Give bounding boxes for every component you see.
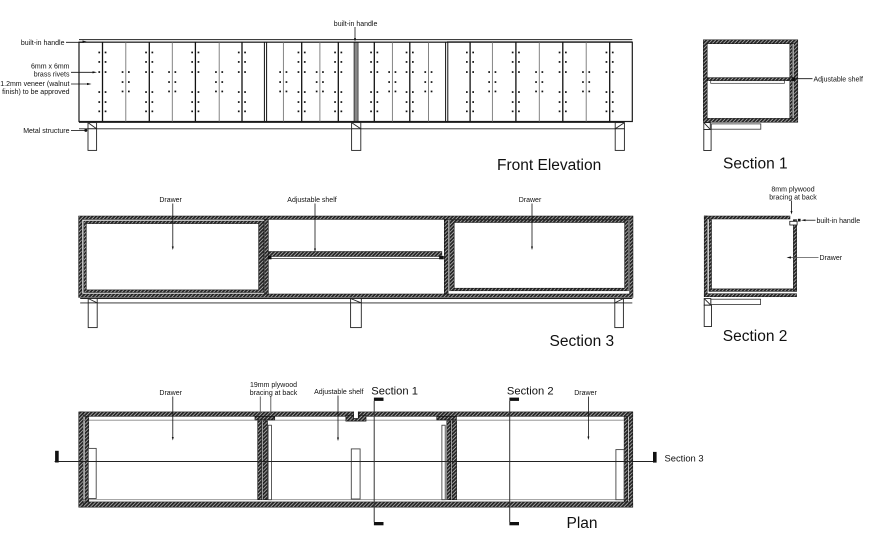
svg-text:Section 3: Section 3 (665, 453, 704, 464)
svg-text:bracing at back: bracing at back (250, 390, 298, 397)
svg-text:Metal structure: Metal structure (23, 128, 69, 135)
svg-text:Adjustable shelf: Adjustable shelf (814, 76, 863, 83)
svg-text:Plan: Plan (567, 515, 598, 532)
svg-text:finish) to be approved: finish) to be approved (2, 89, 69, 96)
svg-text:brass rivets: brass rivets (34, 72, 70, 79)
svg-text:6mm x 6mm: 6mm x 6mm (31, 64, 70, 71)
svg-text:Drawer: Drawer (820, 255, 843, 262)
svg-text:Drawer: Drawer (159, 390, 182, 397)
svg-text:bracing at back: bracing at back (769, 194, 817, 201)
svg-text:8mm plywood: 8mm plywood (771, 186, 814, 193)
svg-text:Section 1: Section 1 (723, 156, 788, 173)
svg-text:Section 1: Section 1 (371, 386, 418, 398)
svg-text:built-in handle: built-in handle (817, 218, 861, 225)
svg-text:built-in handle: built-in handle (21, 40, 65, 47)
svg-text:1.2mm veneer (walnut: 1.2mm veneer (walnut (0, 81, 69, 88)
svg-text:Section 2: Section 2 (723, 328, 788, 345)
svg-text:Drawer: Drawer (159, 197, 182, 204)
svg-text:Drawer: Drawer (519, 197, 542, 204)
svg-text:Section 3: Section 3 (550, 333, 615, 350)
svg-text:built-in handle: built-in handle (334, 21, 378, 28)
svg-text:Drawer: Drawer (574, 390, 597, 397)
svg-text:Section 2: Section 2 (507, 386, 554, 398)
svg-text:19mm plywood: 19mm plywood (250, 382, 297, 389)
svg-text:Adjustable shelf: Adjustable shelf (287, 197, 336, 204)
svg-text:Adjustable shelf: Adjustable shelf (314, 389, 363, 396)
svg-text:Front Elevation: Front Elevation (497, 157, 601, 174)
